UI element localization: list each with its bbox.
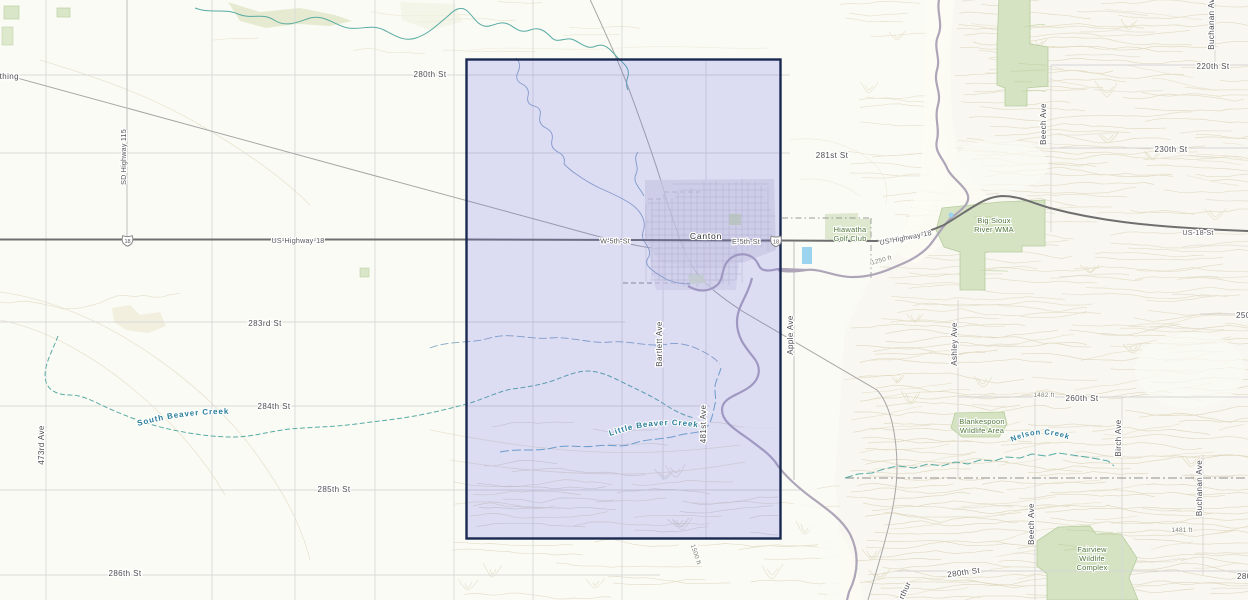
- svg-text:Complex: Complex: [1077, 563, 1108, 572]
- svg-text:Birch Ave: Birch Ave: [1114, 419, 1123, 456]
- svg-text:SD Highway 115: SD Highway 115: [119, 129, 128, 185]
- svg-text:286th St: 286th St: [108, 569, 141, 578]
- svg-text:Ashley Ave: Ashley Ave: [950, 322, 959, 366]
- svg-text:481st Ave: 481st Ave: [699, 405, 708, 444]
- svg-text:Apple Ave: Apple Ave: [786, 315, 795, 355]
- svg-text:Bartlett Ave: Bartlett Ave: [655, 321, 664, 367]
- svg-text:Buchanan Av: Buchanan Av: [1207, 0, 1216, 50]
- svg-text:18: 18: [124, 239, 130, 245]
- svg-text:Golf Club: Golf Club: [833, 234, 866, 243]
- svg-text:Beech Ave: Beech Ave: [1039, 103, 1048, 145]
- svg-text:260th St: 260th St: [1065, 394, 1098, 403]
- svg-text:Buchanan Ave: Buchanan Ave: [1195, 460, 1204, 516]
- svg-text:Blankespoon: Blankespoon: [959, 417, 1005, 426]
- svg-text:284th St: 284th St: [257, 402, 290, 411]
- svg-text:1482 ft: 1482 ft: [1034, 392, 1055, 399]
- svg-text:283rd St: 283rd St: [248, 319, 282, 328]
- svg-text:US-Highway-18: US-Highway-18: [272, 236, 325, 245]
- svg-text:E-5th-St: E-5th-St: [732, 237, 760, 246]
- svg-text:281st St: 281st St: [816, 151, 849, 160]
- svg-text:US-18-St: US-18-St: [1182, 228, 1213, 237]
- svg-text:Beech Ave: Beech Ave: [1027, 503, 1036, 545]
- svg-text:230th St: 230th St: [1154, 145, 1187, 154]
- svg-text:W-5th-St: W-5th-St: [600, 237, 630, 246]
- svg-text:Hiawatha: Hiawatha: [834, 225, 867, 234]
- svg-text:Fairview: Fairview: [1077, 545, 1107, 554]
- svg-text:220th St: 220th St: [1196, 62, 1229, 71]
- svg-text:Worthing: Worthing: [0, 72, 19, 81]
- svg-text:473rd Ave: 473rd Ave: [37, 425, 46, 465]
- svg-text:Wildlife Area: Wildlife Area: [960, 426, 1005, 435]
- svg-text:River WMA: River WMA: [974, 225, 1014, 234]
- svg-text:280th St: 280th St: [413, 70, 446, 79]
- svg-text:Wildlife: Wildlife: [1079, 554, 1105, 563]
- svg-text:250th St: 250th St: [1236, 311, 1248, 320]
- svg-text:Big Sioux: Big Sioux: [977, 216, 1011, 225]
- svg-text:285th St: 285th St: [317, 485, 350, 494]
- svg-text:1481 ft: 1481 ft: [1172, 527, 1193, 534]
- svg-text:280th St: 280th St: [1237, 572, 1248, 581]
- svg-text:18: 18: [773, 239, 779, 245]
- svg-text:Canton: Canton: [690, 231, 722, 241]
